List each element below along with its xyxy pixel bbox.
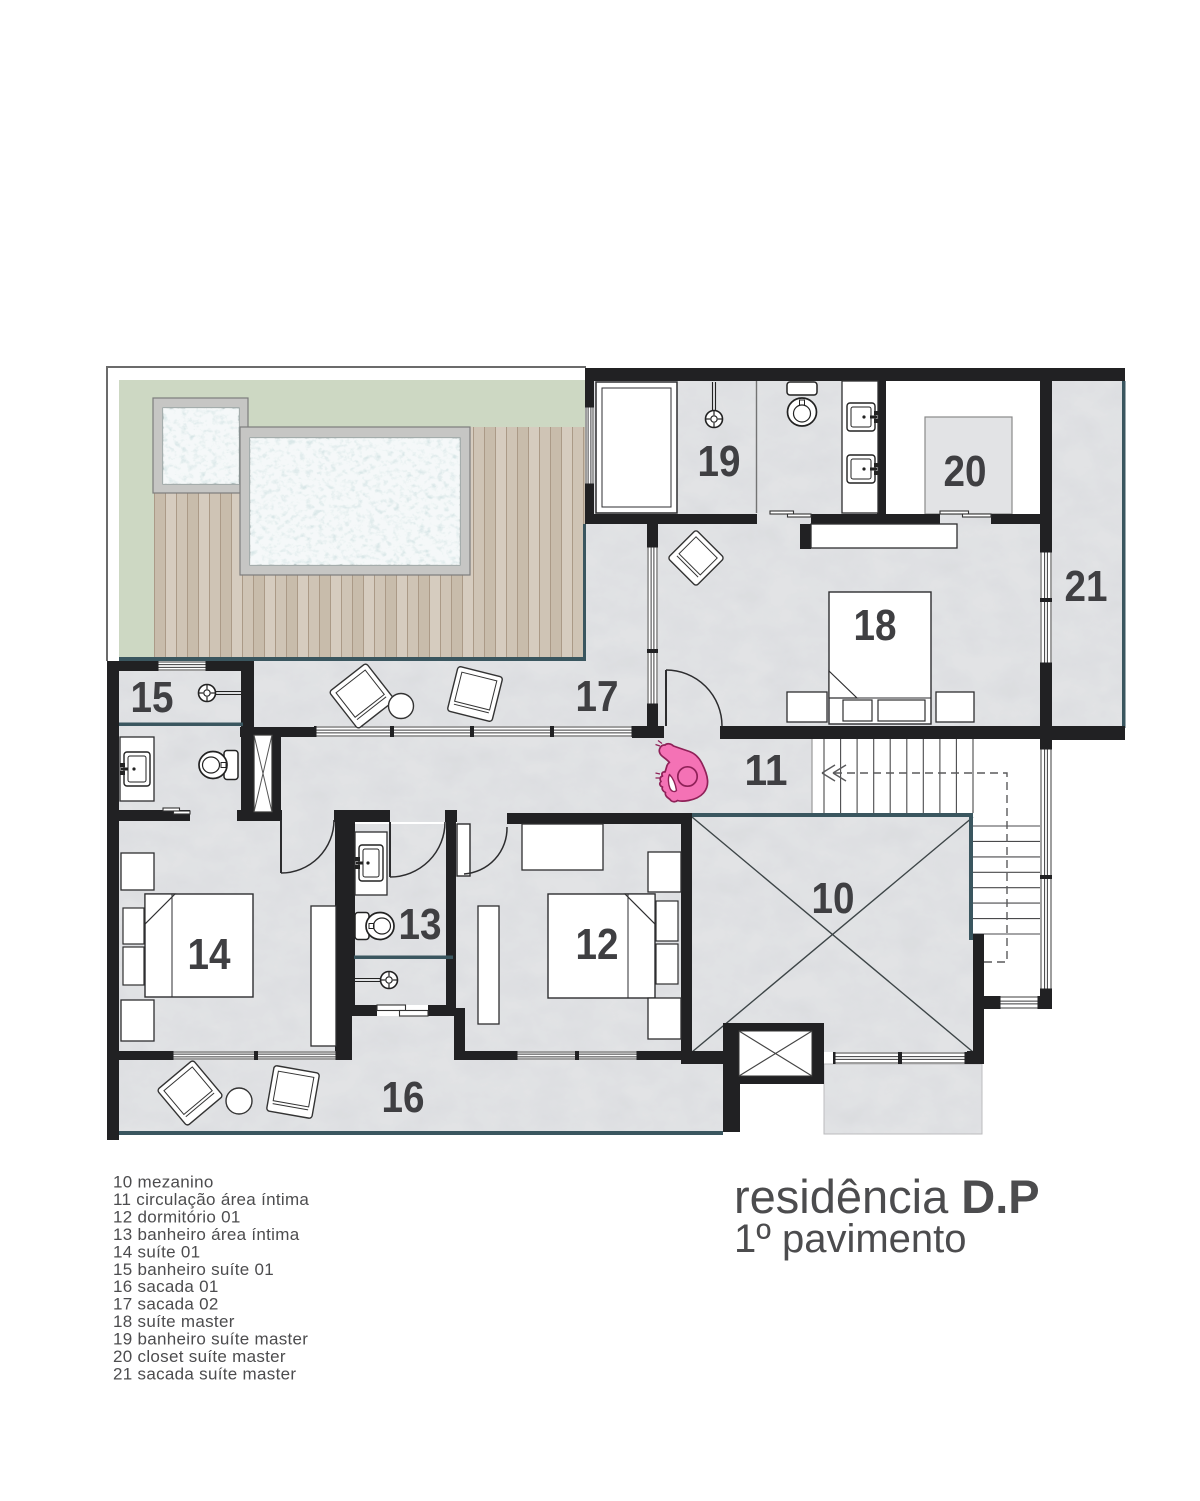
svg-text:19: 19: [698, 437, 741, 486]
svg-text:1º pavimento: 1º pavimento: [734, 1217, 967, 1261]
svg-text:residência D.P: residência D.P: [734, 1170, 1040, 1223]
svg-text:17 sacada 02: 17 sacada 02: [113, 1295, 219, 1314]
svg-text:13: 13: [399, 900, 442, 949]
svg-text:16 sacada 01: 16 sacada 01: [113, 1277, 219, 1296]
svg-text:19 banheiro suíte master: 19 banheiro suíte master: [113, 1330, 308, 1349]
svg-text:16: 16: [382, 1073, 425, 1122]
svg-text:21 sacada suíte master: 21 sacada suíte master: [113, 1365, 296, 1384]
svg-text:17: 17: [576, 672, 619, 721]
svg-text:10 mezanino: 10 mezanino: [113, 1173, 214, 1192]
svg-text:18 suíte master: 18 suíte master: [113, 1312, 235, 1331]
svg-text:20: 20: [944, 447, 987, 496]
svg-text:20 closet suíte master: 20 closet suíte master: [113, 1347, 286, 1366]
svg-text:14 suíte 01: 14 suíte 01: [113, 1242, 200, 1261]
svg-text:11: 11: [745, 746, 788, 795]
svg-text:18: 18: [854, 601, 897, 650]
svg-text:15 banheiro suíte 01: 15 banheiro suíte 01: [113, 1260, 274, 1279]
svg-text:14: 14: [188, 930, 231, 979]
svg-text:21: 21: [1065, 562, 1108, 611]
svg-text:15: 15: [131, 673, 174, 722]
svg-text:12: 12: [576, 920, 619, 969]
svg-text:12 dormitório 01: 12 dormitório 01: [113, 1207, 241, 1226]
svg-text:10: 10: [812, 874, 855, 923]
svg-text:13 banheiro área íntima: 13 banheiro área íntima: [113, 1225, 300, 1244]
svg-text:11 circulação área íntima: 11 circulação área íntima: [113, 1190, 309, 1209]
